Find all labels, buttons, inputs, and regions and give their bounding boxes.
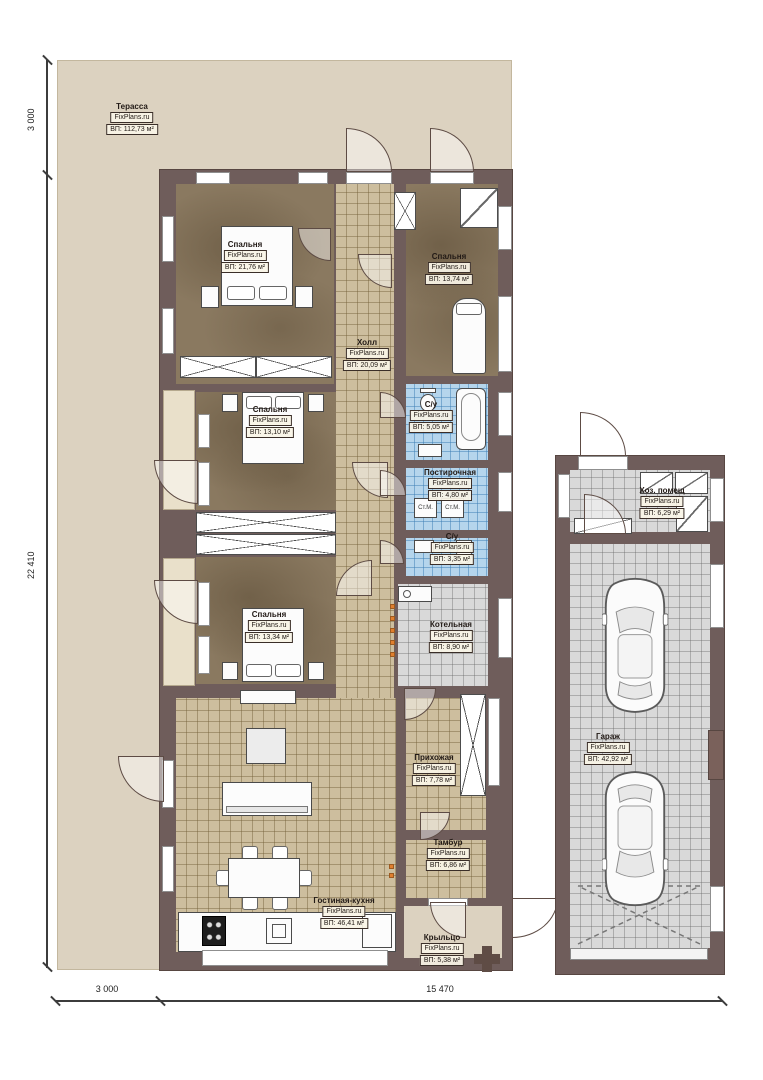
room-name: Холл [357,338,377,347]
chair-icon [298,870,312,886]
shelving-icon [460,188,498,228]
dimension-line-left [46,60,48,968]
door-arc [512,898,558,938]
room-name: Тамбур [433,838,462,847]
window [558,474,570,518]
window [198,636,210,674]
dimension-label-left-side: 22 410 [26,530,36,600]
floor-plan: 3 000 22 410 3 000 15 470 [0,0,763,1080]
room-area: ВП: 20,09 м² [343,360,391,371]
room-area: ВП: 4,80 м² [428,490,472,501]
watermark: FixPlans.ru [345,348,388,359]
radiator-dot [390,628,395,633]
door-opening [198,462,210,506]
room-name: Постирочная [424,468,476,477]
room-name: Терасса [116,102,148,111]
room-name: Котельная [430,620,472,629]
watermark: FixPlans.ru [247,620,290,631]
room-area: ВП: 5,38 м² [420,955,464,966]
door-opening [578,456,628,470]
boiler-unit-icon [403,590,411,598]
watermark: FixPlans.ru [412,763,455,774]
window [162,216,174,262]
room-label-vestibule: Тамбур FixPlans.ru ВП: 6,86 м² [426,838,470,871]
room-label-living-kitchen: Гостиная-кухня FixPlans.ru ВП: 46,41 м² [313,896,374,929]
watermark: FixPlans.ru [427,262,470,273]
dimension-line-bottom [55,1000,723,1002]
door-opening [430,172,474,184]
nightstand-icon [308,394,324,412]
window [298,172,328,184]
radiator-dot [390,652,395,657]
room-name: Гостиная-кухня [313,896,374,905]
pillow-icon [246,664,272,677]
watermark: FixPlans.ru [409,410,452,421]
room-name: Спальня [253,405,288,414]
room-name: С/у [446,532,458,541]
room-label-boiler: Котельная FixPlans.ru ВП: 8,90 м² [429,620,473,653]
window [498,598,512,658]
nightstand-icon [308,662,324,680]
car-icon [602,764,668,914]
watermark: FixPlans.ru [640,496,683,507]
radiator-dot [389,864,394,869]
room-area: ВП: 7,78 м² [412,775,456,786]
radiator-dot [389,873,394,878]
nightstand-icon [222,394,238,412]
dimension-label-bottom-main: 15 470 [408,984,472,994]
room-label-garage: Гараж FixPlans.ru ВП: 42,92 м² [584,732,632,765]
pillow-icon [259,286,287,300]
wardrobe-icon [460,694,486,796]
watermark: FixPlans.ru [426,848,469,859]
room-label-porch: Крыльцо FixPlans.ru ВП: 5,38 м² [420,933,464,966]
room-label-hall: Холл FixPlans.ru ВП: 20,09 м² [343,338,391,371]
room-area: ВП: 13,10 м² [246,427,294,438]
nightstand-icon [295,286,313,308]
dimension-label-left-top: 3 000 [26,90,36,150]
room-label-bedroom4: Спальня FixPlans.ru ВП: 13,34 м² [245,610,293,643]
window [710,886,724,932]
room-name: Спальня [252,610,287,619]
room-area: ВП: 13,34 м² [245,632,293,643]
door-arc [580,412,626,456]
room-name: Спальня [228,240,263,249]
sink-icon [418,444,442,457]
room-area: ВП: 6,29 м² [640,508,684,519]
room-name: Гараж [596,732,620,741]
room-area: ВП: 5,05 м² [409,422,453,433]
room-area: ВП: 6,86 м² [426,860,470,871]
car-icon [602,570,668,720]
bathtub-icon [461,393,481,441]
window [498,392,512,436]
stove-icon [202,916,226,946]
window [202,950,388,966]
wardrobe-icon [196,534,336,555]
watermark: FixPlans.ru [322,906,365,917]
watermark: FixPlans.ru [223,250,266,261]
door-opening [198,582,210,626]
porch-column [482,946,492,972]
tv-stand-icon [240,690,296,704]
door-opening [346,172,392,184]
window [198,414,210,448]
room-area: ВП: 3,35 м² [430,554,474,565]
window [196,172,230,184]
cupboard-icon [394,192,416,230]
radiator-dot [390,604,395,609]
window [498,472,512,512]
room-label-terrace: Терасса FixPlans.ru ВП: 112,73 м² [106,102,158,135]
room-area: ВП: 112,73 м² [106,124,158,135]
garage-pier [708,730,724,780]
room-label-bathroom2: С/у FixPlans.ru ВП: 3,35 м² [430,532,474,565]
toilet-icon [420,388,436,393]
room-label-entry: Прихожая FixPlans.ru ВП: 7,78 м² [412,753,456,786]
watermark: FixPlans.ru [110,112,153,123]
chair-icon [272,896,288,910]
pillow-icon [456,303,482,315]
room-label-bathroom1: С/у FixPlans.ru ВП: 5,05 м² [409,400,453,433]
window [498,206,512,250]
window [162,308,174,354]
watermark: FixPlans.ru [420,943,463,954]
pillow-icon [227,286,255,300]
room-label-bedroom1: Спальня FixPlans.ru ВП: 21,76 м² [221,240,269,273]
window [710,564,724,628]
watermark: FixPlans.ru [248,415,291,426]
wardrobe-icon [180,356,256,378]
room-area: ВП: 46,41 м² [320,918,368,929]
nightstand-icon [222,662,238,680]
room-name: Прихожая [414,753,453,762]
window [498,296,512,372]
room-area: ВП: 42,92 м² [584,754,632,765]
coffee-table-icon [246,728,286,764]
room-label-laundry: Постирочная FixPlans.ru ВП: 4,80 м² [424,468,476,501]
radiator-dot [390,616,395,621]
garage-gate [570,948,708,960]
watermark: FixPlans.ru [586,742,629,753]
room-name: С/у [425,400,437,409]
room-area: ВП: 13,74 м² [425,274,473,285]
kitchen-sink-icon [272,924,286,938]
window [162,846,174,892]
dimension-label-bottom-left: 3 000 [77,984,137,994]
chair-icon [242,896,258,910]
room-name: Спальня [432,252,467,261]
wardrobe-icon [256,356,332,378]
pillow-icon [275,664,301,677]
room-area: ВП: 21,76 м² [221,262,269,273]
wardrobe-icon [196,512,336,533]
room-label-utility: Хоз. помещ FixPlans.ru ВП: 6,29 м² [639,486,684,519]
room-area: ВП: 8,90 м² [429,642,473,653]
room-label-bedroom2: Спальня FixPlans.ru ВП: 13,74 м² [425,252,473,285]
window [710,478,724,522]
sofa-icon [226,806,308,813]
watermark: FixPlans.ru [429,630,472,641]
room-name: Хоз. помещ [639,486,684,495]
nightstand-icon [201,286,219,308]
watermark: FixPlans.ru [428,478,471,489]
room-name: Крыльцо [424,933,460,942]
room-label-bedroom3: Спальня FixPlans.ru ВП: 13,10 м² [246,405,294,438]
radiator-dot [390,640,395,645]
dining-table-icon [228,858,300,898]
window [488,698,500,786]
watermark: FixPlans.ru [430,542,473,553]
